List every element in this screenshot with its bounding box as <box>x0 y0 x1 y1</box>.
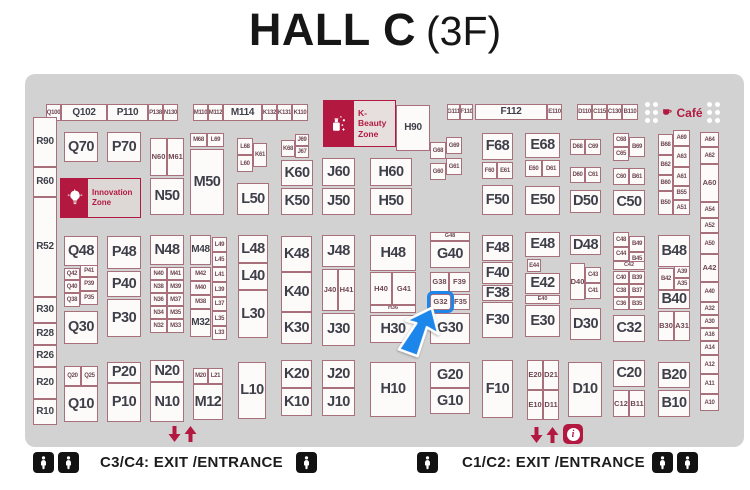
booth-F10[interactable]: F10 <box>482 360 513 418</box>
booth-C50[interactable]: C50 <box>613 190 645 215</box>
booth-R20[interactable]: R20 <box>33 367 57 399</box>
booth-K20[interactable]: K20 <box>281 360 312 388</box>
booth-B37[interactable]: B37 <box>629 284 645 297</box>
booth-F35[interactable]: F35 <box>451 294 470 310</box>
cafe-area: Café <box>645 99 720 126</box>
booth-R90[interactable]: R90 <box>33 117 57 167</box>
cosmetics-icon <box>324 101 354 146</box>
booth-K61[interactable]: K61 <box>253 143 267 167</box>
booth-B35[interactable]: B35 <box>629 297 645 310</box>
booth-B40[interactable]: B40 <box>658 290 690 309</box>
booth-D68[interactable]: D68 <box>570 139 585 155</box>
booth-C12[interactable]: C12 <box>613 390 629 417</box>
booth-B50[interactable]: B50 <box>658 191 673 215</box>
booth-Q70[interactable]: Q70 <box>64 132 98 162</box>
booth-P39[interactable]: P39 <box>80 277 98 291</box>
booth-P110[interactable]: P110 <box>107 104 148 121</box>
booth-B68[interactable]: B68 <box>658 134 673 155</box>
booth-A30[interactable]: A30 <box>700 315 719 328</box>
booth-B49[interactable]: B49 <box>629 236 645 252</box>
booth-J50[interactable]: J50 <box>322 188 355 215</box>
booth-N38[interactable]: N38 <box>150 280 167 293</box>
booth-B110[interactable]: B110 <box>622 104 638 120</box>
booth-G38[interactable]: G38 <box>430 272 449 292</box>
booth-D11[interactable]: D11 <box>543 390 559 420</box>
booth-Q48[interactable]: Q48 <box>64 236 98 266</box>
booth-G10[interactable]: G10 <box>430 388 470 414</box>
booth-P48[interactable]: P48 <box>107 236 141 269</box>
booth-C43[interactable]: C43 <box>585 267 601 283</box>
booth-L35[interactable]: L35 <box>212 311 227 326</box>
booth-E40[interactable]: E40 <box>525 295 560 304</box>
booth-P30[interactable]: P30 <box>107 299 141 337</box>
booth-M33[interactable]: M33 <box>167 319 184 333</box>
booth-N34[interactable]: N34 <box>150 306 167 319</box>
booth-N60[interactable]: N60 <box>150 138 167 176</box>
booth-K68[interactable]: K68 <box>281 140 295 157</box>
booth-F48[interactable]: F48 <box>482 235 513 261</box>
escalator-up-icon <box>184 426 197 442</box>
booth-A54[interactable]: A54 <box>700 202 719 218</box>
booth-J67[interactable]: J67 <box>295 146 309 158</box>
booth-H10[interactable]: H10 <box>370 362 416 417</box>
booth-M48[interactable]: M48 <box>190 235 211 265</box>
booth-L10[interactable]: L10 <box>238 362 266 419</box>
booth-M50[interactable]: M50 <box>190 149 224 215</box>
booth-N50[interactable]: N50 <box>150 178 184 215</box>
k-beauty-zone: K-Beauty Zone <box>323 100 396 147</box>
booth-Q102[interactable]: Q102 <box>61 104 107 121</box>
booth-K10[interactable]: K10 <box>281 388 312 416</box>
booth-C42[interactable]: C42 <box>613 261 645 270</box>
booth-A69[interactable]: A69 <box>673 130 690 146</box>
booth-A35[interactable]: A35 <box>674 278 690 290</box>
booth-N130[interactable]: N130 <box>163 104 178 121</box>
booth-M37[interactable]: M37 <box>167 293 184 306</box>
booth-K132[interactable]: K132 <box>262 104 277 121</box>
escalator-down-icon <box>530 427 543 443</box>
innovation-zone: Innovation Zone <box>60 178 141 218</box>
booth-C69[interactable]: C69 <box>585 139 601 155</box>
booth-Q40[interactable]: Q40 <box>64 280 80 293</box>
booth-J30[interactable]: J30 <box>322 313 355 346</box>
booth-B39[interactable]: B39 <box>629 271 645 284</box>
booth-R52[interactable]: R52 <box>33 197 57 297</box>
lightbulb-icon <box>61 179 88 217</box>
booth-F39[interactable]: F39 <box>449 272 470 292</box>
booth-F68[interactable]: F68 <box>482 133 513 160</box>
booth-C36[interactable]: C36 <box>613 297 629 310</box>
booth-G61[interactable]: G61 <box>446 158 462 175</box>
booth-A42[interactable]: A42 <box>700 254 719 282</box>
booth-H41[interactable]: H41 <box>338 269 355 311</box>
booth-P10[interactable]: P10 <box>107 383 141 422</box>
booth-Q20[interactable]: Q20 <box>64 366 81 386</box>
booth-M42[interactable]: M42 <box>190 267 211 281</box>
booth-C65[interactable]: C65 <box>613 147 629 161</box>
booth-K40[interactable]: K40 <box>281 272 312 312</box>
booth-E61[interactable]: E61 <box>497 162 513 179</box>
booth-P40[interactable]: P40 <box>107 271 141 297</box>
booth-A60[interactable]: A60 <box>700 164 719 202</box>
booth-A39[interactable]: A39 <box>674 266 690 278</box>
booth-R60[interactable]: R60 <box>33 167 57 197</box>
booth-B48[interactable]: B48 <box>658 235 690 267</box>
booth-J40[interactable]: J40 <box>322 269 338 311</box>
coffee-icon <box>662 106 673 120</box>
booth-K131[interactable]: K131 <box>277 104 292 121</box>
booth-L41[interactable]: L41 <box>212 267 227 282</box>
booth-N10[interactable]: N10 <box>150 382 184 422</box>
booth-C44[interactable]: C44 <box>613 247 629 261</box>
booth-H90[interactable]: H90 <box>396 105 430 151</box>
booth-M12[interactable]: M12 <box>193 384 223 420</box>
booth-D60[interactable]: D60 <box>570 167 585 183</box>
booth-Q25[interactable]: Q25 <box>81 366 98 386</box>
booth-L37[interactable]: L37 <box>212 297 227 311</box>
booth-F112[interactable]: F112 <box>475 104 547 120</box>
booth-R10[interactable]: R10 <box>33 399 57 425</box>
booth-A32[interactable]: A32 <box>700 302 719 315</box>
exit-label-right: C1/C2: EXIT /ENTRANCE <box>462 454 645 471</box>
booth-A64[interactable]: A64 <box>700 132 719 147</box>
floor-label: (3F) <box>426 8 501 54</box>
restroom-icon <box>652 452 673 473</box>
booth-M20[interactable]: M20 <box>193 368 208 384</box>
booth-E110[interactable]: E110 <box>547 104 562 120</box>
booth-N40[interactable]: N40 <box>150 267 167 280</box>
booth-G60[interactable]: G60 <box>430 163 446 180</box>
booth-M68[interactable]: M68 <box>190 133 207 147</box>
booth-C115[interactable]: C115 <box>592 104 607 120</box>
booth-P41[interactable]: P41 <box>80 265 98 277</box>
booth-Q10[interactable]: Q10 <box>64 386 98 422</box>
booth-A63[interactable]: A63 <box>673 146 690 167</box>
booth-B20[interactable]: B20 <box>658 362 690 388</box>
booth-A40[interactable]: A40 <box>700 282 719 302</box>
booth-N32[interactable]: N32 <box>150 319 167 333</box>
booth-P35[interactable]: P35 <box>80 291 98 305</box>
booth-M61[interactable]: M61 <box>167 138 184 176</box>
booth-K30[interactable]: K30 <box>281 312 312 344</box>
booth-K50[interactable]: K50 <box>281 188 313 215</box>
booth-L60[interactable]: L60 <box>237 155 253 172</box>
booth-F110[interactable]: F110 <box>460 104 473 120</box>
booth-A50[interactable]: A50 <box>700 233 719 254</box>
booth-E44[interactable]: E44 <box>527 259 541 272</box>
booth-L40[interactable]: L40 <box>238 263 268 290</box>
booth-A16[interactable]: A16 <box>700 328 719 341</box>
restroom-icon <box>677 452 698 473</box>
booth-D21[interactable]: D21 <box>543 360 559 390</box>
booth-G48[interactable]: G48 <box>430 232 470 241</box>
booth-L33[interactable]: L33 <box>212 326 227 340</box>
booth-J48[interactable]: J48 <box>322 235 355 267</box>
booth-G69[interactable]: G69 <box>446 137 462 154</box>
booth-H48[interactable]: H48 <box>370 235 416 271</box>
booth-Q38[interactable]: Q38 <box>64 293 80 307</box>
booth-C61[interactable]: C61 <box>585 167 601 183</box>
booth-M35[interactable]: M35 <box>167 306 184 319</box>
booth-L49[interactable]: L49 <box>212 237 227 252</box>
booth-R30[interactable]: R30 <box>33 297 57 323</box>
exit-label-left: C3/C4: EXIT /ENTRANCE <box>100 454 283 471</box>
innovation-zone-label: Innovation Zone <box>88 179 140 217</box>
booth-A31[interactable]: A31 <box>674 311 690 341</box>
booth-C40[interactable]: C40 <box>613 271 629 284</box>
booth-H50[interactable]: H50 <box>370 188 412 215</box>
booth-A51[interactable]: A51 <box>673 200 690 215</box>
restroom-icon <box>33 452 54 473</box>
booth-M114[interactable]: M114 <box>223 104 262 121</box>
booth-D48[interactable]: D48 <box>570 235 601 255</box>
booth-L39[interactable]: L39 <box>212 282 227 297</box>
booth-N36[interactable]: N36 <box>150 293 167 306</box>
booth-F50[interactable]: F50 <box>482 185 513 215</box>
booth-B69[interactable]: B69 <box>629 137 645 157</box>
booth-A10[interactable]: A10 <box>700 394 719 411</box>
booth-F60[interactable]: F60 <box>482 162 497 179</box>
restroom-icon <box>296 452 317 473</box>
booth-P70[interactable]: P70 <box>107 132 141 162</box>
booth-N48[interactable]: N48 <box>150 235 184 265</box>
booth-D110[interactable]: D110 <box>577 104 592 120</box>
booth-G20[interactable]: G20 <box>430 362 470 388</box>
booth-H40[interactable]: H40 <box>370 272 392 305</box>
booth-R28[interactable]: R28 <box>33 323 57 345</box>
cafe-dots-right <box>707 102 720 123</box>
restroom-icon <box>417 452 438 473</box>
booth-C38[interactable]: C38 <box>613 284 629 297</box>
k-beauty-zone-label: K-Beauty Zone <box>354 101 395 146</box>
booth-G40[interactable]: G40 <box>430 241 470 268</box>
booth-K48[interactable]: K48 <box>281 236 312 272</box>
booth-E10[interactable]: E10 <box>527 390 543 420</box>
booth-B11[interactable]: B11 <box>629 390 645 417</box>
booth-A61[interactable]: A61 <box>673 167 690 186</box>
booth-B10[interactable]: B10 <box>658 390 690 417</box>
page-title: HALL C(3F) <box>0 4 750 56</box>
booth-D40[interactable]: D40 <box>570 263 585 300</box>
booth-M38[interactable]: M38 <box>190 295 211 309</box>
booth-M112[interactable]: M112 <box>208 104 223 121</box>
escalator-up-icon <box>546 427 559 443</box>
booth-L68[interactable]: L68 <box>237 138 253 155</box>
booth-L50[interactable]: L50 <box>237 183 269 215</box>
booth-Q42[interactable]: Q42 <box>64 268 80 280</box>
booth-E60[interactable]: E60 <box>525 160 542 177</box>
booth-K110[interactable]: K110 <box>292 104 308 121</box>
booth-N20[interactable]: N20 <box>150 360 184 382</box>
booth-D30[interactable]: D30 <box>570 308 601 340</box>
booth-E68[interactable]: E68 <box>525 133 560 158</box>
booth-M40[interactable]: M40 <box>190 281 211 295</box>
booth-B55[interactable]: B55 <box>673 186 690 200</box>
booth-M41[interactable]: M41 <box>167 267 184 280</box>
booth-M32[interactable]: M32 <box>190 309 211 337</box>
booth-L21[interactable]: L21 <box>208 368 223 384</box>
booth-Q30[interactable]: Q30 <box>64 311 98 344</box>
booth-A62[interactable]: A62 <box>700 147 719 164</box>
escalator-down-icon <box>168 426 181 442</box>
booth-H60[interactable]: H60 <box>370 158 412 186</box>
booth-E42[interactable]: E42 <box>525 273 560 294</box>
booth-P138[interactable]: P138 <box>148 104 163 121</box>
booth-F38[interactable]: F38 <box>482 285 513 301</box>
booth-C68[interactable]: C68 <box>613 133 629 147</box>
booth-B62[interactable]: B62 <box>658 155 673 175</box>
cafe-label: Café <box>676 106 702 120</box>
booth-B30[interactable]: B30 <box>658 311 674 341</box>
booth-A52[interactable]: A52 <box>700 218 719 233</box>
booth-C60[interactable]: C60 <box>613 168 629 185</box>
booth-K60[interactable]: K60 <box>281 160 313 186</box>
booth-C32[interactable]: C32 <box>613 315 645 342</box>
booth-B61[interactable]: B61 <box>629 168 645 185</box>
booth-C41[interactable]: C41 <box>585 283 601 299</box>
booth-G111[interactable]: G111 <box>447 104 460 120</box>
booth-B42[interactable]: B42 <box>658 268 674 290</box>
booth-R26[interactable]: R26 <box>33 345 57 367</box>
booth-D10[interactable]: D10 <box>568 362 602 417</box>
information-icon: i <box>563 424 583 444</box>
booth-J10[interactable]: J10 <box>322 388 355 416</box>
booth-E50[interactable]: E50 <box>525 186 560 215</box>
booth-E20[interactable]: E20 <box>527 360 543 390</box>
booth-E30[interactable]: E30 <box>525 305 560 337</box>
restroom-icon <box>58 452 79 473</box>
booth-E48[interactable]: E48 <box>525 232 560 257</box>
booth-F40[interactable]: F40 <box>482 262 513 284</box>
booth-C48[interactable]: C48 <box>613 232 629 247</box>
booth-L69[interactable]: L69 <box>207 133 224 147</box>
booth-J69[interactable]: J69 <box>295 134 309 146</box>
booth-L45[interactable]: L45 <box>212 252 227 267</box>
booth-A12[interactable]: A12 <box>700 355 719 374</box>
booth-L30[interactable]: L30 <box>238 290 268 338</box>
booth-M110[interactable]: M110 <box>193 104 208 121</box>
booth-D50[interactable]: D50 <box>570 190 601 213</box>
hall-title: HALL C <box>249 4 416 55</box>
booth-F30[interactable]: F30 <box>482 302 513 338</box>
booth-D61[interactable]: D61 <box>542 160 560 177</box>
booth-A11[interactable]: A11 <box>700 374 719 394</box>
booth-C130[interactable]: C130 <box>607 104 622 120</box>
booth-B60[interactable]: B60 <box>658 175 673 191</box>
booth-L48[interactable]: L48 <box>238 235 268 263</box>
booth-M39[interactable]: M39 <box>167 280 184 293</box>
booth-A14[interactable]: A14 <box>700 341 719 355</box>
booth-J20[interactable]: J20 <box>322 360 355 388</box>
booth-G68[interactable]: G68 <box>430 142 446 159</box>
booth-J60[interactable]: J60 <box>322 158 355 186</box>
booth-P20[interactable]: P20 <box>107 362 141 383</box>
cafe-dots-left <box>645 102 658 123</box>
booth-C20[interactable]: C20 <box>613 360 645 387</box>
